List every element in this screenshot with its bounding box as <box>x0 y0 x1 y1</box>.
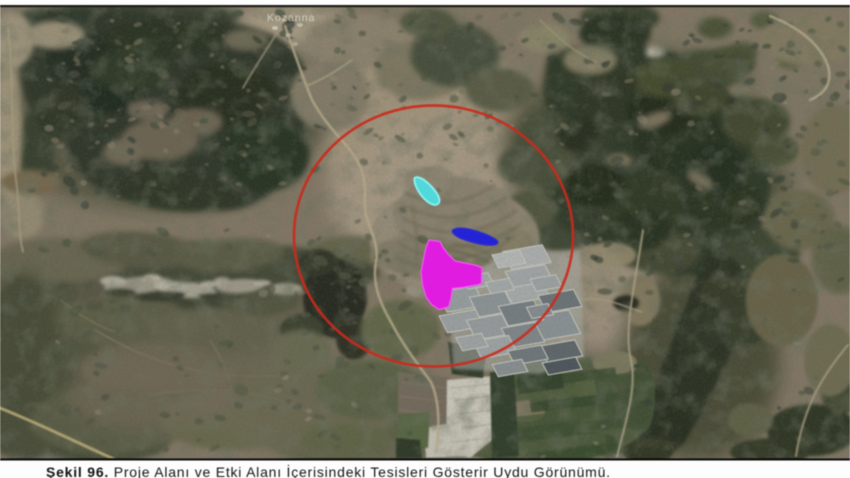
svg-text:Kozanna: Kozanna <box>267 12 315 24</box>
